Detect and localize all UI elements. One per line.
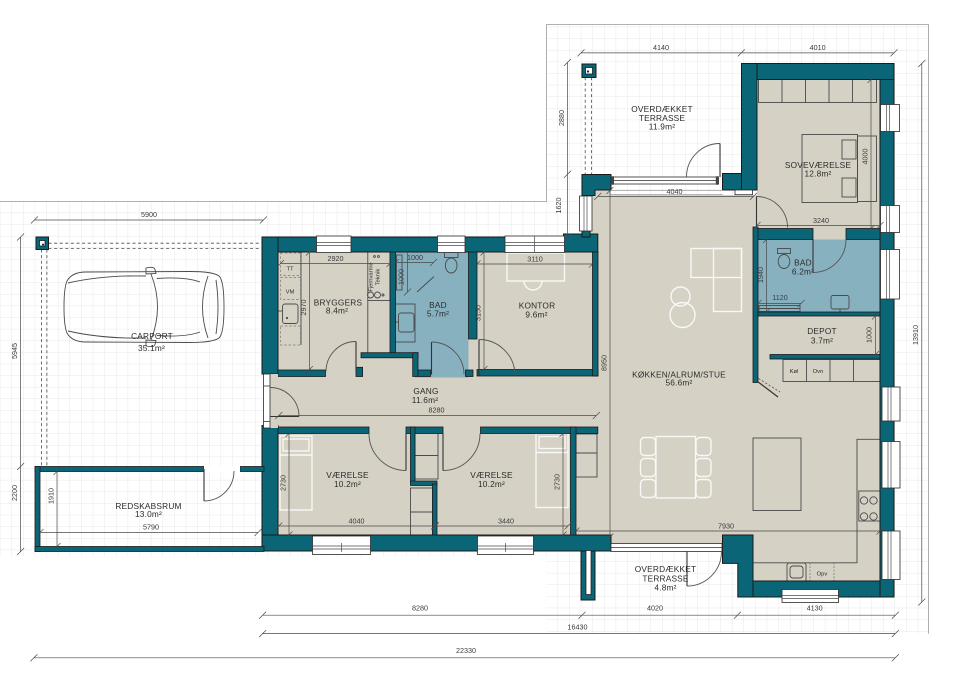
svg-text:1940: 1940 xyxy=(756,267,765,283)
svg-text:4.8m²: 4.8m² xyxy=(654,583,676,593)
svg-text:1910: 1910 xyxy=(47,488,56,504)
svg-text:2880: 2880 xyxy=(557,110,566,126)
svg-text:1000: 1000 xyxy=(407,253,423,262)
svg-text:4010: 4010 xyxy=(810,43,826,52)
svg-text:4040: 4040 xyxy=(667,187,683,196)
svg-text:3.7m²: 3.7m² xyxy=(811,336,833,346)
svg-text:10.2m²: 10.2m² xyxy=(334,479,361,489)
svg-text:3150: 3150 xyxy=(474,305,483,321)
svg-text:3240: 3240 xyxy=(813,216,829,225)
svg-text:VM: VM xyxy=(286,290,295,296)
svg-text:4130: 4130 xyxy=(807,603,823,612)
svg-text:7930: 7930 xyxy=(718,522,734,531)
svg-text:10.2m²: 10.2m² xyxy=(478,479,505,489)
svg-text:16430: 16430 xyxy=(568,622,588,631)
svg-text:3440: 3440 xyxy=(498,517,514,526)
svg-text:Køl: Køl xyxy=(790,369,799,375)
svg-text:11.6m²: 11.6m² xyxy=(412,395,438,405)
svg-text:56.6m²: 56.6m² xyxy=(665,378,692,388)
svg-text:9.6m²: 9.6m² xyxy=(525,310,547,320)
svg-text:8280: 8280 xyxy=(429,406,445,415)
svg-text:Fjernvarme: Fjernvarme xyxy=(369,262,375,291)
svg-text:1120: 1120 xyxy=(772,293,787,302)
svg-text:4020: 4020 xyxy=(647,603,663,612)
svg-text:2970: 2970 xyxy=(299,300,308,316)
svg-text:12.8m²: 12.8m² xyxy=(804,169,831,179)
svg-text:DEPOT: DEPOT xyxy=(807,326,837,336)
svg-text:5790: 5790 xyxy=(143,523,159,532)
svg-text:1000: 1000 xyxy=(865,327,874,343)
svg-text:8950: 8950 xyxy=(600,355,609,371)
svg-text:1000: 1000 xyxy=(397,269,406,285)
svg-text:8280: 8280 xyxy=(412,603,428,612)
svg-text:5900: 5900 xyxy=(141,210,157,219)
svg-text:2730: 2730 xyxy=(553,474,562,490)
svg-text:22330: 22330 xyxy=(456,646,476,655)
svg-text:2200: 2200 xyxy=(10,485,19,501)
svg-text:4040: 4040 xyxy=(349,517,365,526)
svg-text:4140: 4140 xyxy=(653,43,669,52)
svg-text:6.2m²: 6.2m² xyxy=(792,267,814,277)
svg-text:Opv: Opv xyxy=(817,572,828,578)
svg-text:5.7m²: 5.7m² xyxy=(427,309,449,319)
svg-text:11.9m²: 11.9m² xyxy=(649,122,675,132)
svg-text:13910: 13910 xyxy=(911,325,920,345)
svg-text:1620: 1620 xyxy=(554,198,563,214)
svg-text:2730: 2730 xyxy=(279,475,288,491)
svg-text:2920: 2920 xyxy=(328,254,344,263)
svg-text:35.1m²: 35.1m² xyxy=(138,343,165,353)
svg-text:TT: TT xyxy=(286,267,294,273)
svg-text:Ovn: Ovn xyxy=(813,369,824,375)
svg-text:13.0m²: 13.0m² xyxy=(135,509,162,519)
svg-text:5945: 5945 xyxy=(10,343,19,359)
svg-text:CARPORT: CARPORT xyxy=(131,331,173,341)
svg-text:4000: 4000 xyxy=(861,149,870,165)
svg-text:Teknik: Teknik xyxy=(376,269,382,286)
svg-text:3110: 3110 xyxy=(527,255,542,264)
svg-text:8.4m²: 8.4m² xyxy=(326,306,348,316)
